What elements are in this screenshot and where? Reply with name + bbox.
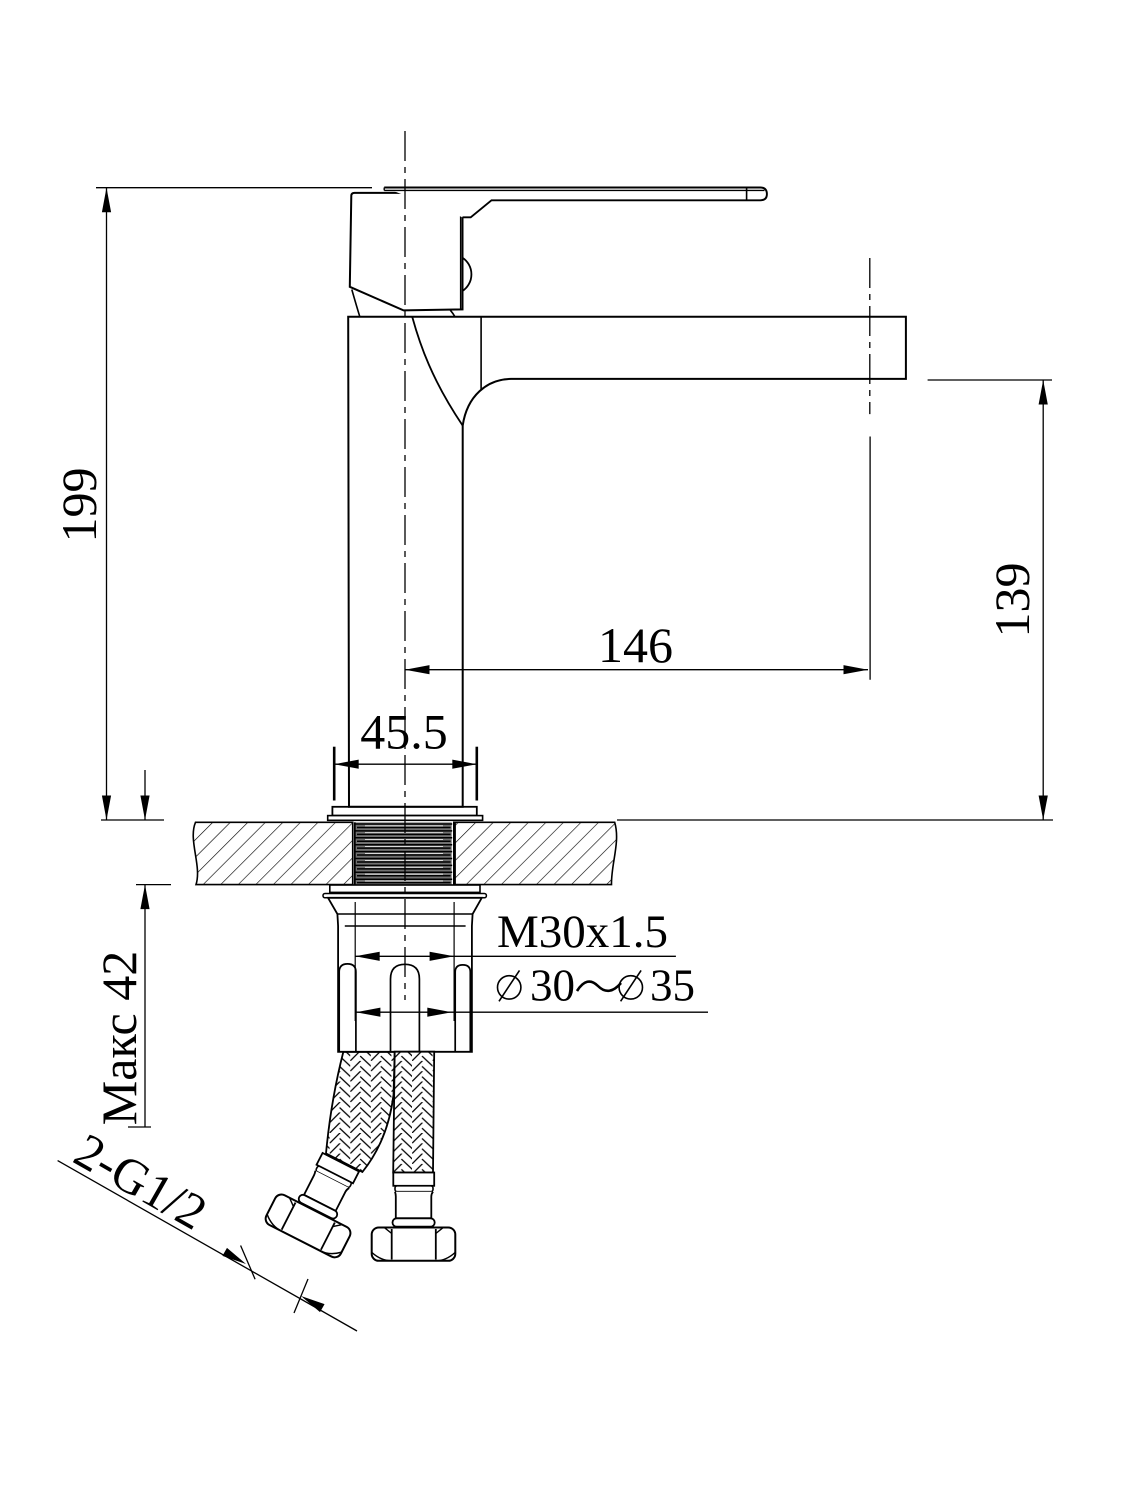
svg-text:199: 199 bbox=[51, 468, 107, 543]
svg-text:45.5: 45.5 bbox=[360, 703, 448, 759]
svg-text:30: 30 bbox=[530, 960, 575, 1010]
svg-text:146: 146 bbox=[598, 617, 673, 673]
svg-text:Макс 42: Макс 42 bbox=[91, 951, 147, 1125]
svg-text:35: 35 bbox=[650, 960, 695, 1010]
svg-text:M30x1.5: M30x1.5 bbox=[497, 906, 668, 958]
svg-text:139: 139 bbox=[984, 563, 1040, 638]
